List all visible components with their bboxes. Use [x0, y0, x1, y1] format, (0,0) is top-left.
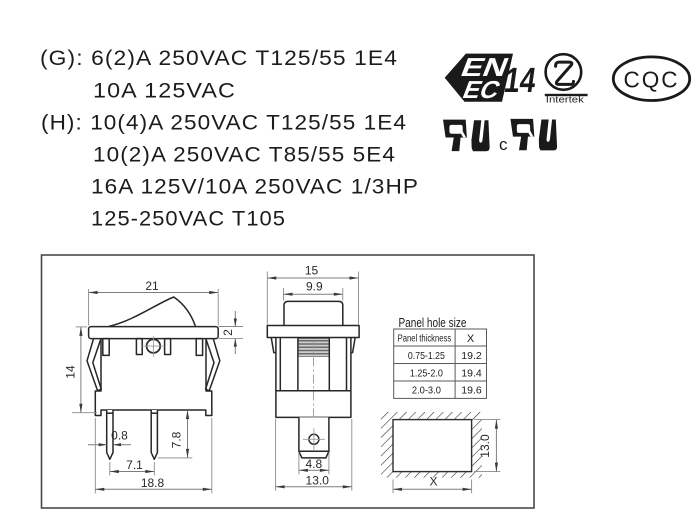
- svg-text:0.8: 0.8: [111, 429, 128, 443]
- svg-text:16A 125V/10A 250VAC 1/3HP: 16A 125V/10A 250VAC 1/3HP: [91, 176, 419, 199]
- svg-text:13.0: 13.0: [478, 434, 492, 458]
- svg-text:(G): 6(2)A 250VAC T125/55: (G): 6(2)A 250VAC T125/55 1E4: [40, 47, 398, 70]
- svg-text:10(2)A 250VAC T85/55 5E4: 10(2)A 250VAC T85/55 5E4: [93, 143, 396, 166]
- svg-text:c: c: [499, 135, 508, 154]
- svg-text:19.6: 19.6: [461, 385, 482, 397]
- svg-text:14: 14: [502, 61, 539, 100]
- svg-text:X: X: [467, 333, 475, 345]
- svg-text:X: X: [429, 475, 437, 489]
- svg-text:(H): 10(4)A 250VAC T125/55: (H): 10(4)A 250VAC T125/55 1E4: [41, 111, 407, 134]
- svg-text:125-250VAC T105: 125-250VAC T105: [91, 208, 286, 231]
- svg-text:19.4: 19.4: [461, 367, 482, 379]
- svg-text:Intertek: Intertek: [546, 95, 584, 106]
- svg-text:13.0: 13.0: [306, 473, 330, 487]
- svg-text:18.8: 18.8: [141, 476, 165, 490]
- svg-text:7.8: 7.8: [170, 431, 184, 448]
- svg-text:1.25-2.0: 1.25-2.0: [410, 367, 443, 379]
- svg-text:7.1: 7.1: [126, 458, 143, 472]
- svg-text:Panel hole size: Panel hole size: [399, 315, 467, 330]
- svg-text:Panel thickness: Panel thickness: [398, 333, 452, 344]
- svg-text:2.0-3.0: 2.0-3.0: [412, 385, 441, 397]
- svg-text:4.8: 4.8: [306, 457, 323, 471]
- svg-text:15: 15: [305, 264, 319, 278]
- svg-text:21: 21: [145, 279, 159, 293]
- svg-text:14: 14: [64, 365, 78, 379]
- svg-text:10A 125VAC: 10A 125VAC: [93, 80, 236, 103]
- svg-text:CQC: CQC: [624, 66, 680, 92]
- svg-text:0.75-1.25: 0.75-1.25: [408, 350, 445, 362]
- svg-text:9.9: 9.9: [306, 280, 323, 294]
- svg-text:19.2: 19.2: [461, 350, 482, 362]
- svg-text:2: 2: [221, 329, 235, 336]
